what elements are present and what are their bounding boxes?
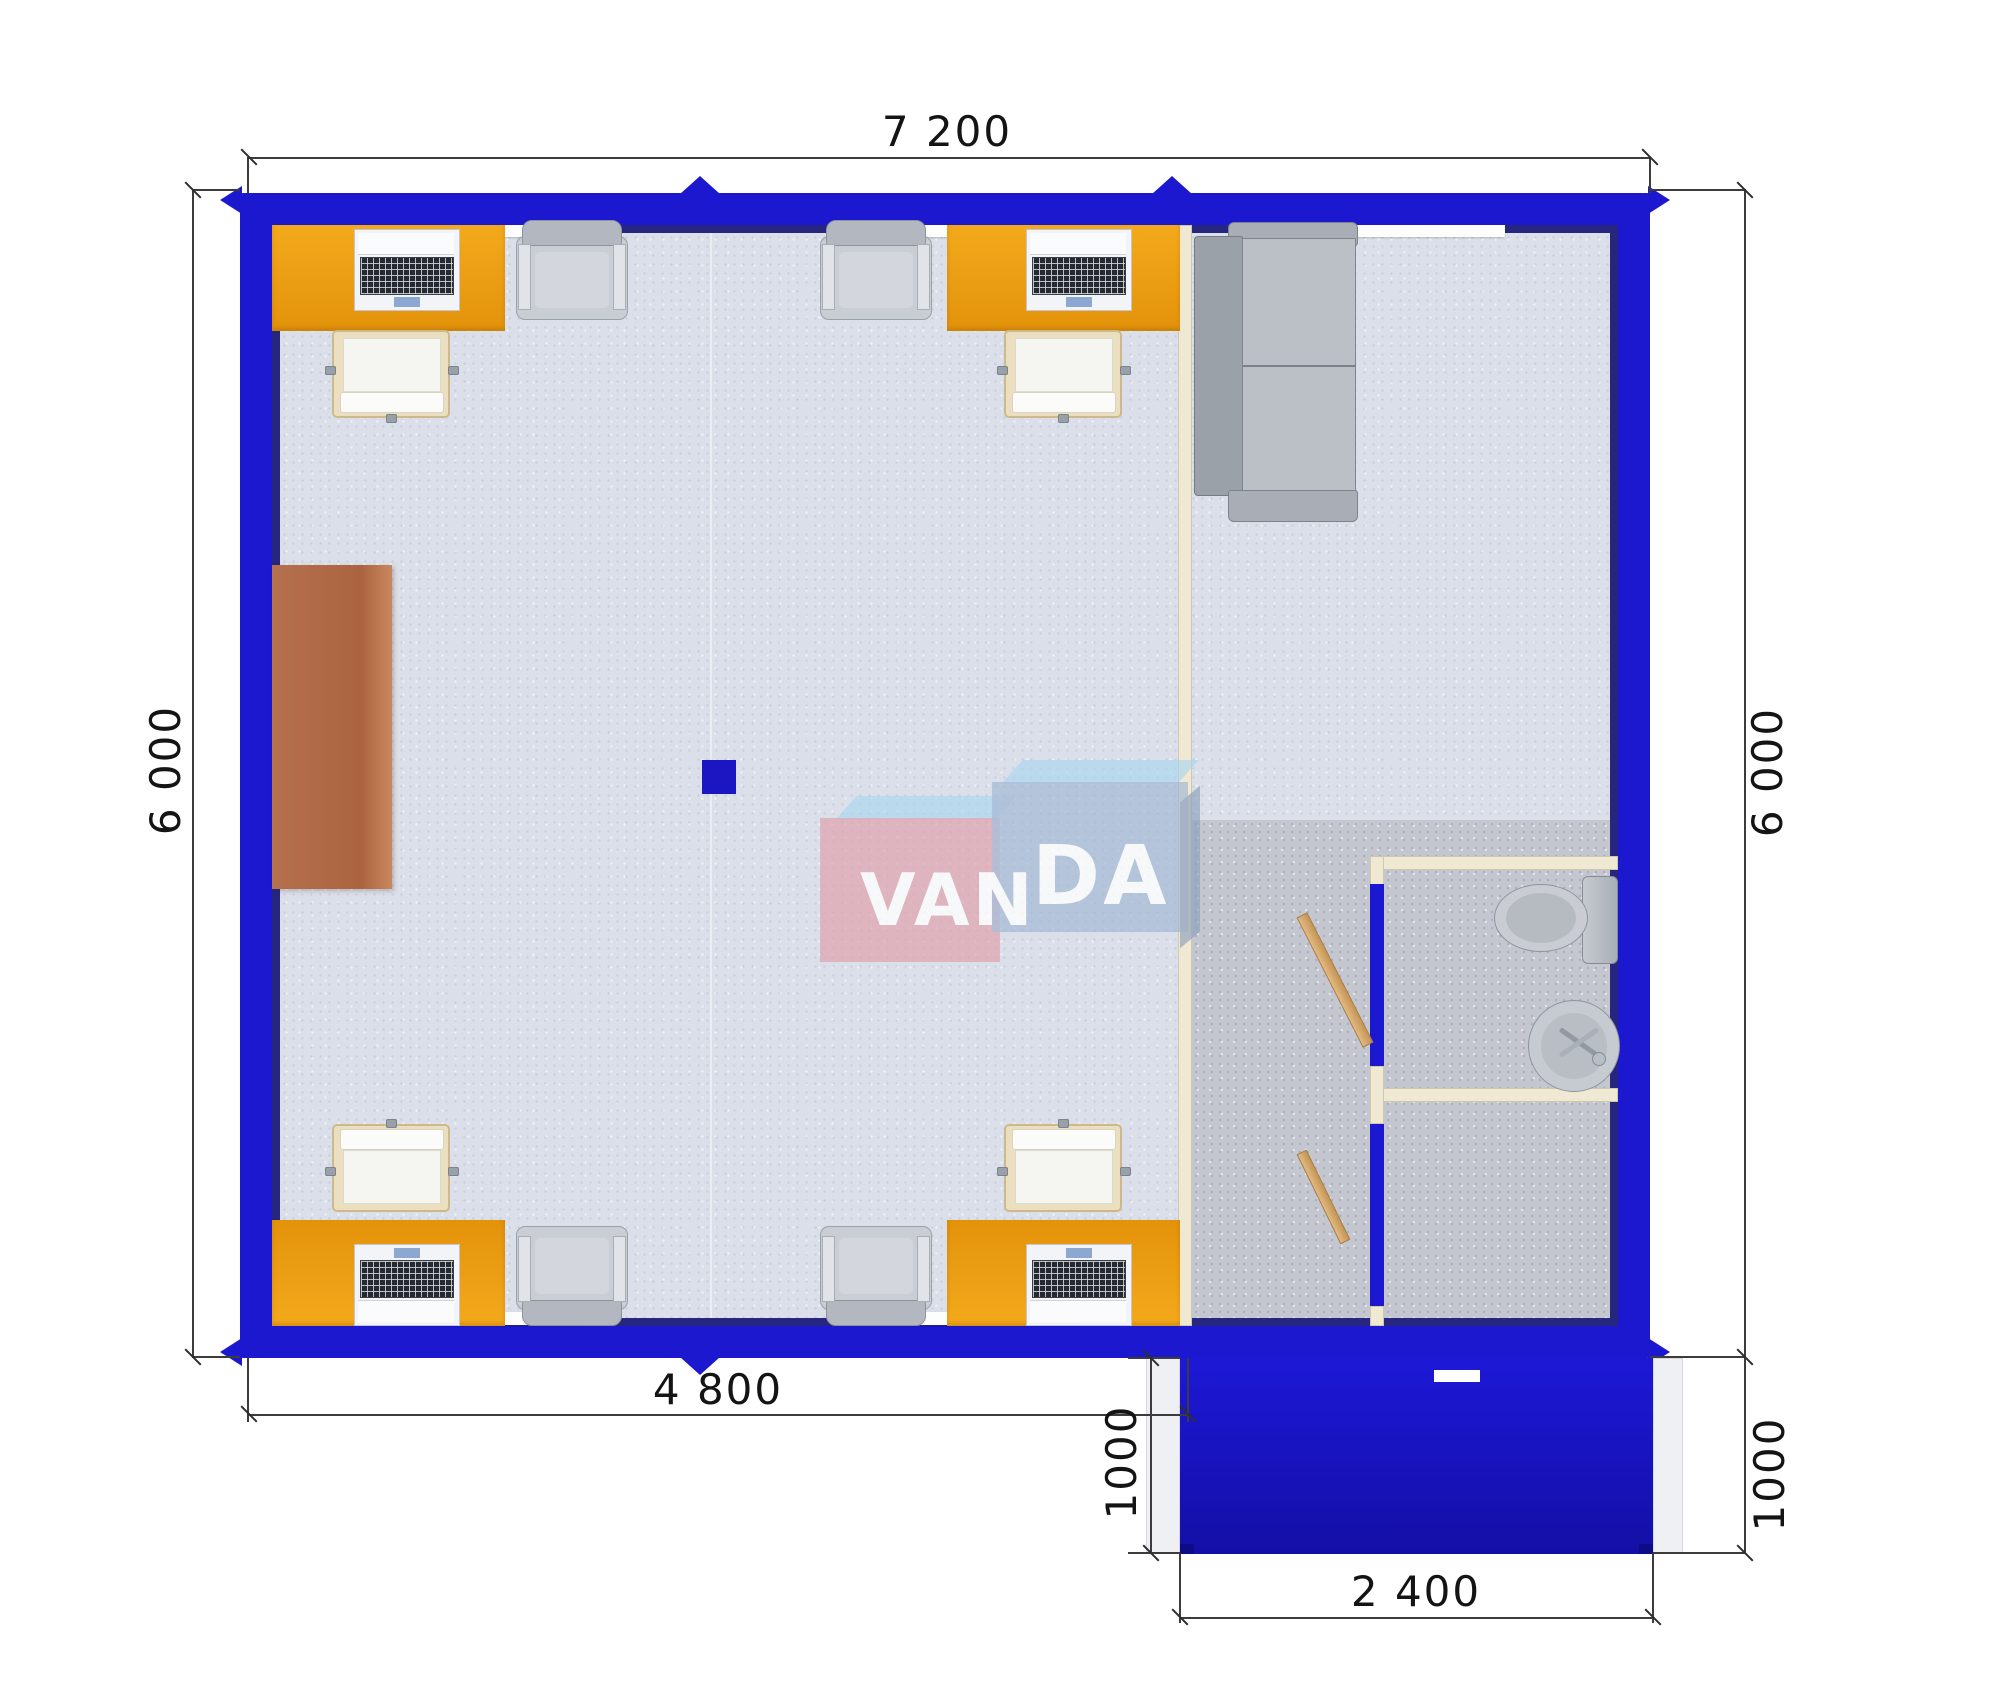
sideboard <box>272 565 392 889</box>
dim-top-label: 7 200 <box>797 110 1097 154</box>
logo-bevel <box>1001 760 1199 784</box>
dim-ext <box>1649 157 1651 193</box>
logo-text-da: DA <box>1032 836 1170 918</box>
visitor-armchair <box>820 220 932 320</box>
dim-ext <box>1650 189 1746 191</box>
dim-left-line <box>192 190 194 1358</box>
dim-porch-right-label: 1000 <box>1748 1324 1792 1624</box>
vestibule-door-frame <box>1370 1124 1384 1308</box>
visitor-armchair <box>516 220 628 320</box>
dim-left-label: 6 000 <box>144 620 188 920</box>
bathroom-wall-left <box>1370 1306 1384 1326</box>
dim-top-line <box>248 157 1650 159</box>
dim-ext <box>247 157 249 193</box>
wall-joint-arrow <box>1152 176 1192 194</box>
visitor-armchair <box>820 1226 932 1326</box>
dim-right-label: 6 000 <box>1746 622 1790 922</box>
dim-bottom-line <box>248 1414 1188 1416</box>
porch-threshold <box>1434 1370 1480 1382</box>
logo-text-van: VAN <box>860 864 1036 936</box>
logo-bevel <box>835 796 1017 820</box>
laptop <box>1026 229 1132 311</box>
bathroom-wall-left <box>1370 856 1384 886</box>
sofa-back <box>1194 236 1244 496</box>
laptop <box>354 229 460 311</box>
bathroom-wall-top <box>1370 856 1618 870</box>
porch-side-strip <box>1653 1358 1683 1554</box>
wall-joint-arrow <box>680 176 720 194</box>
wall-corner-arrow <box>220 1338 242 1366</box>
dim-porch-right-line <box>1744 1358 1746 1554</box>
office-chair <box>332 1124 450 1212</box>
dim-ext <box>1179 1553 1181 1623</box>
office-chair <box>332 330 450 418</box>
dim-ext <box>1652 1553 1654 1623</box>
dim-porch-width-label: 2 400 <box>1266 1570 1566 1614</box>
dim-ext <box>192 1356 240 1358</box>
sofa-armrest <box>1228 490 1358 522</box>
faucet-spout <box>1592 1052 1606 1066</box>
dim-porch-left-line <box>1150 1358 1152 1554</box>
ceiling-lamp <box>702 760 736 794</box>
office-chair <box>1004 1124 1122 1212</box>
visitor-armchair <box>516 1226 628 1326</box>
laptop <box>354 1244 460 1326</box>
dim-right-line <box>1744 190 1746 1358</box>
vanda-logo: VAN DA <box>816 760 1188 952</box>
toilet-seat <box>1506 893 1576 943</box>
office-chair <box>1004 330 1122 418</box>
porch <box>1180 1358 1653 1554</box>
dim-ext <box>1653 1552 1746 1554</box>
dim-bottom-label: 4 800 <box>568 1368 868 1412</box>
bathroom-wall-left <box>1370 1066 1384 1124</box>
dim-porch-width-line <box>1180 1617 1653 1619</box>
logo-bevel <box>1180 786 1200 949</box>
dim-ext <box>1650 1356 1746 1358</box>
floor-plan: VAN DA 7 200 6 000 6 000 4 800 1000 1000 <box>0 0 2000 1682</box>
dim-ext <box>192 189 240 191</box>
porch-foot <box>1639 1544 1653 1554</box>
sofa-cushion-divider <box>1242 365 1356 367</box>
porch-foot <box>1180 1544 1194 1554</box>
